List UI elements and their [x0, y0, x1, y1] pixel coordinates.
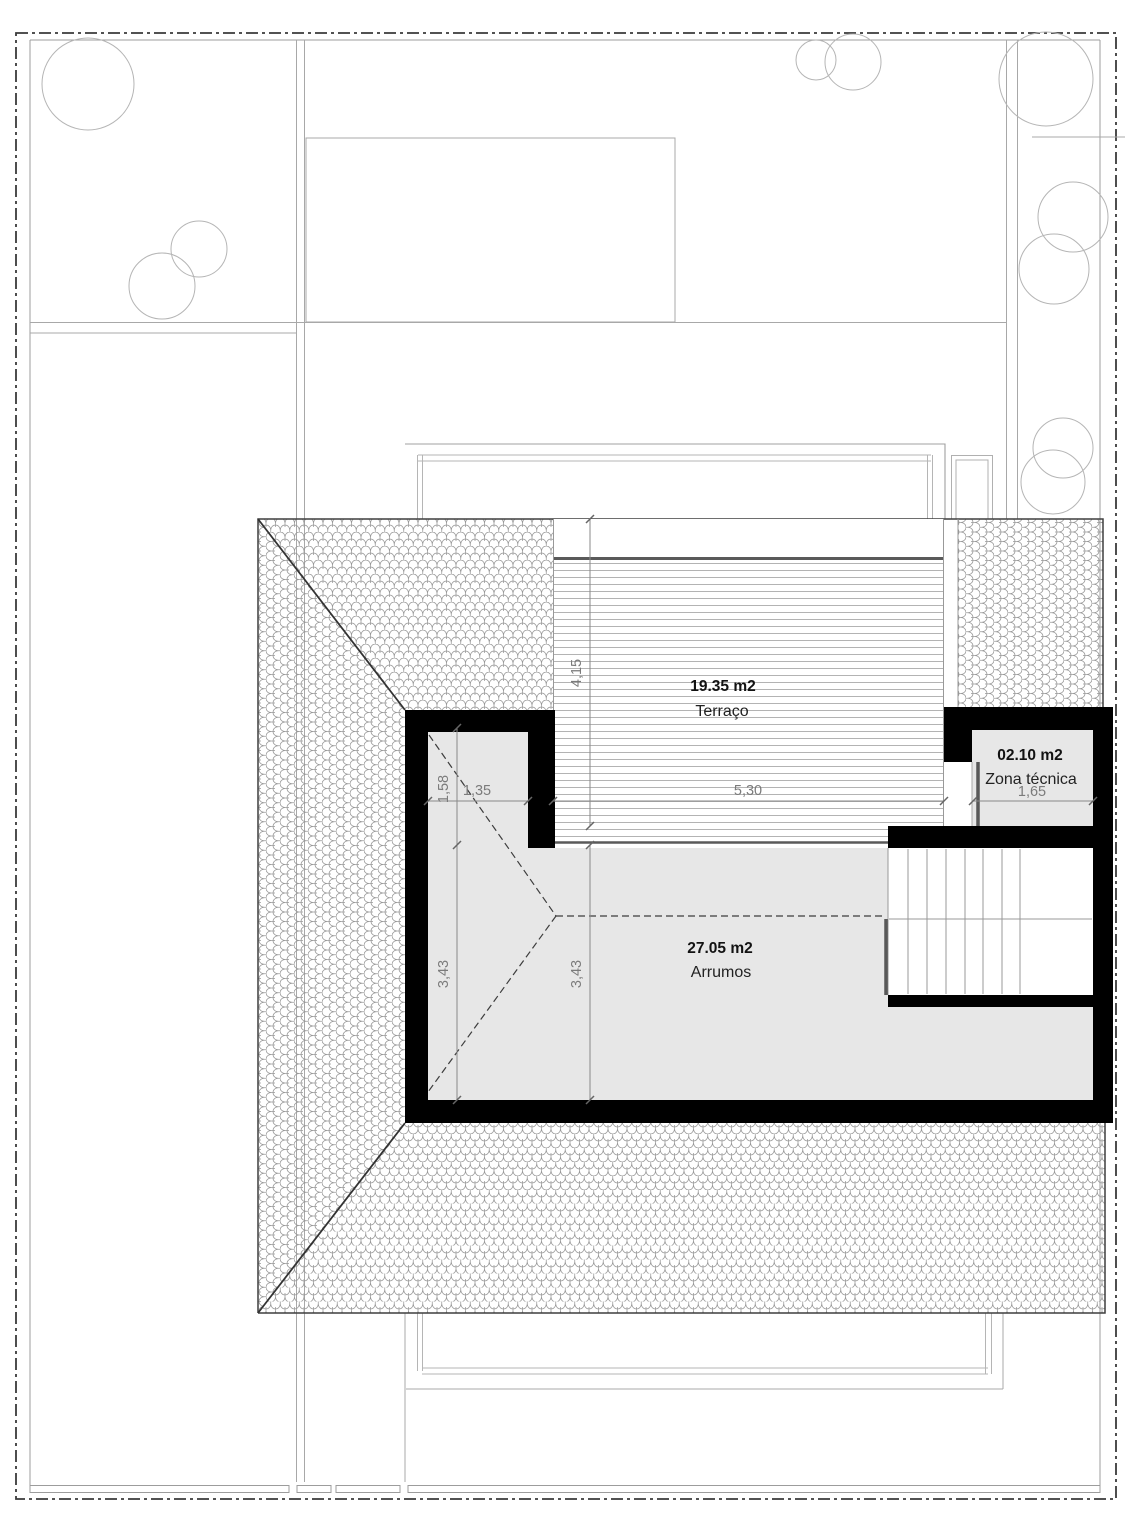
parapet-box: [952, 456, 993, 520]
roof-slope-bottom: [258, 1123, 1105, 1313]
zona-door-gap: [944, 762, 972, 826]
dim-corridor-height: 1,58: [436, 775, 452, 803]
arrumos-area-label: 27.05 m2: [687, 940, 753, 957]
dim-storage-height-left: 3,43: [436, 960, 452, 988]
dim-corridor-width: 1,35: [463, 783, 491, 799]
tree-canopy: [42, 38, 134, 130]
fence-bottom-segment: [30, 1486, 289, 1493]
terrace-parapet-lines: [418, 455, 933, 519]
terrace-name-label: Terraço: [695, 703, 748, 720]
roof-slope-right: [958, 519, 1103, 707]
fence-bottom-segment: [297, 1486, 331, 1493]
wall-block-zona: [944, 707, 972, 762]
wall-left: [405, 710, 428, 1123]
wall-block-corridor: [528, 710, 555, 848]
lower-floor-outline-bottom: [405, 1313, 1003, 1482]
floor-plan-page: 1,58 3,43 4,15 3,43 1,35 5,30 1,65 19.35…: [0, 0, 1125, 1526]
wall-zona-bottom: [888, 826, 1093, 848]
tree-canopy: [1033, 418, 1093, 478]
lower-floor-double: [418, 1313, 423, 1371]
arrumos-floor: [428, 848, 888, 1100]
tree-canopy: [999, 32, 1093, 126]
fence-bottom-segment: [408, 1486, 1100, 1493]
dim-terrace-width: 5,30: [734, 783, 762, 799]
zona-name-label: Zona técnica: [985, 771, 1077, 788]
arrumos-name-label: Arrumos: [691, 964, 751, 981]
zona-area-label: 02.10 m2: [997, 747, 1063, 764]
tree-canopy: [1021, 450, 1085, 514]
staircase: [888, 848, 1093, 995]
dim-terrace-height: 4,15: [569, 659, 585, 687]
terrace-parapet-lines-bottom: [422, 1313, 992, 1374]
tree-canopy: [129, 253, 195, 319]
trees: [42, 32, 1108, 514]
stair-well: [888, 848, 1093, 995]
fence-bottom-segment: [336, 1486, 400, 1493]
wall-right: [1093, 707, 1113, 1123]
wall-under-stair: [888, 995, 1093, 1007]
lower-floor-step-line: [406, 1313, 1003, 1389]
terrace-area-label: 19.35 m2: [690, 678, 756, 695]
wall-bottom: [405, 1100, 1113, 1123]
tree-canopy: [1038, 182, 1108, 252]
tree-canopy: [1019, 234, 1089, 304]
tree-canopy: [171, 221, 227, 277]
garden-inner-rect: [306, 138, 675, 322]
tree-canopy: [825, 34, 881, 90]
lower-floor-outline-top: [405, 444, 993, 519]
dim-storage-height-right: 3,43: [569, 960, 585, 988]
arrumos-floor-right: [888, 1007, 1093, 1100]
floor-plan-canvas: 1,58 3,43 4,15 3,43 1,35 5,30 1,65 19.35…: [0, 0, 1125, 1526]
